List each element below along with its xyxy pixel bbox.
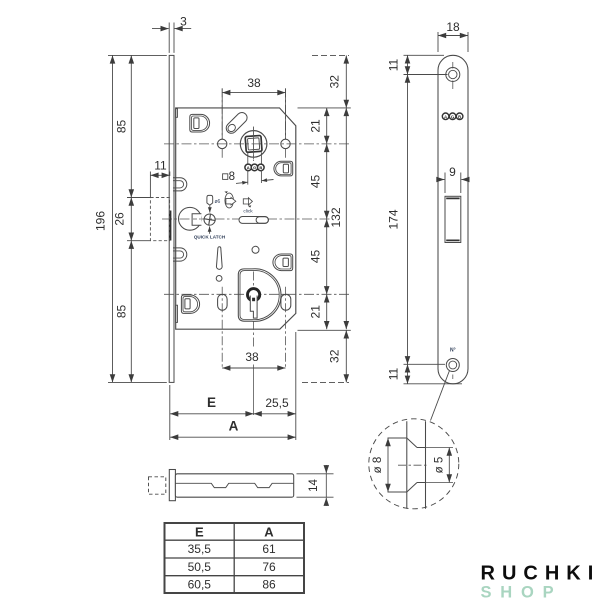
svg-text:A: A bbox=[264, 524, 274, 539]
svg-text:76: 76 bbox=[262, 560, 276, 574]
svg-text:21: 21 bbox=[309, 305, 323, 319]
svg-text:18: 18 bbox=[446, 20, 460, 34]
svg-text:11: 11 bbox=[387, 367, 401, 380]
svg-text:38: 38 bbox=[245, 350, 259, 364]
svg-text:E: E bbox=[207, 395, 216, 410]
svg-text:61: 61 bbox=[262, 542, 276, 556]
svg-text:60,5: 60,5 bbox=[188, 578, 212, 592]
svg-text:45: 45 bbox=[309, 250, 323, 264]
svg-text:click: click bbox=[243, 208, 253, 214]
svg-text:38: 38 bbox=[247, 76, 261, 90]
svg-text:196: 196 bbox=[94, 211, 108, 231]
svg-text:B: B bbox=[458, 114, 461, 119]
svg-text:ø 8: ø 8 bbox=[372, 457, 384, 474]
svg-text:26: 26 bbox=[113, 212, 127, 226]
svg-text:132: 132 bbox=[329, 207, 343, 227]
svg-text:32: 32 bbox=[328, 75, 342, 89]
svg-text:174: 174 bbox=[387, 209, 401, 229]
svg-text:E: E bbox=[195, 524, 204, 539]
svg-text:11: 11 bbox=[387, 58, 401, 71]
svg-text:86: 86 bbox=[262, 578, 276, 592]
svg-text:85: 85 bbox=[115, 120, 129, 134]
svg-text:ø6: ø6 bbox=[215, 199, 221, 205]
svg-text:ø 5: ø 5 bbox=[434, 457, 446, 474]
svg-text:32: 32 bbox=[328, 349, 342, 363]
svg-text:B: B bbox=[259, 165, 262, 170]
svg-text:A: A bbox=[247, 165, 250, 170]
svg-text:3: 3 bbox=[180, 15, 187, 29]
svg-text:45: 45 bbox=[309, 175, 323, 189]
svg-text:14: 14 bbox=[308, 479, 320, 492]
svg-text:50,5: 50,5 bbox=[188, 560, 212, 574]
svg-text:G: G bbox=[253, 165, 256, 170]
svg-text:G: G bbox=[451, 114, 455, 119]
svg-text:25,5: 25,5 bbox=[265, 396, 289, 410]
svg-text:85: 85 bbox=[115, 305, 129, 319]
svg-text:8: 8 bbox=[229, 171, 235, 183]
svg-text:QUICK LATCH: QUICK LATCH bbox=[194, 234, 226, 239]
svg-text:RUCHKI: RUCHKI bbox=[481, 563, 600, 585]
svg-text:35,5: 35,5 bbox=[188, 542, 212, 556]
svg-text:9: 9 bbox=[449, 165, 456, 179]
svg-text:21: 21 bbox=[309, 119, 323, 133]
svg-text:N°: N° bbox=[450, 348, 456, 354]
svg-text:11: 11 bbox=[154, 159, 167, 173]
svg-text:SHOP: SHOP bbox=[481, 584, 563, 600]
svg-text:A: A bbox=[229, 419, 239, 434]
